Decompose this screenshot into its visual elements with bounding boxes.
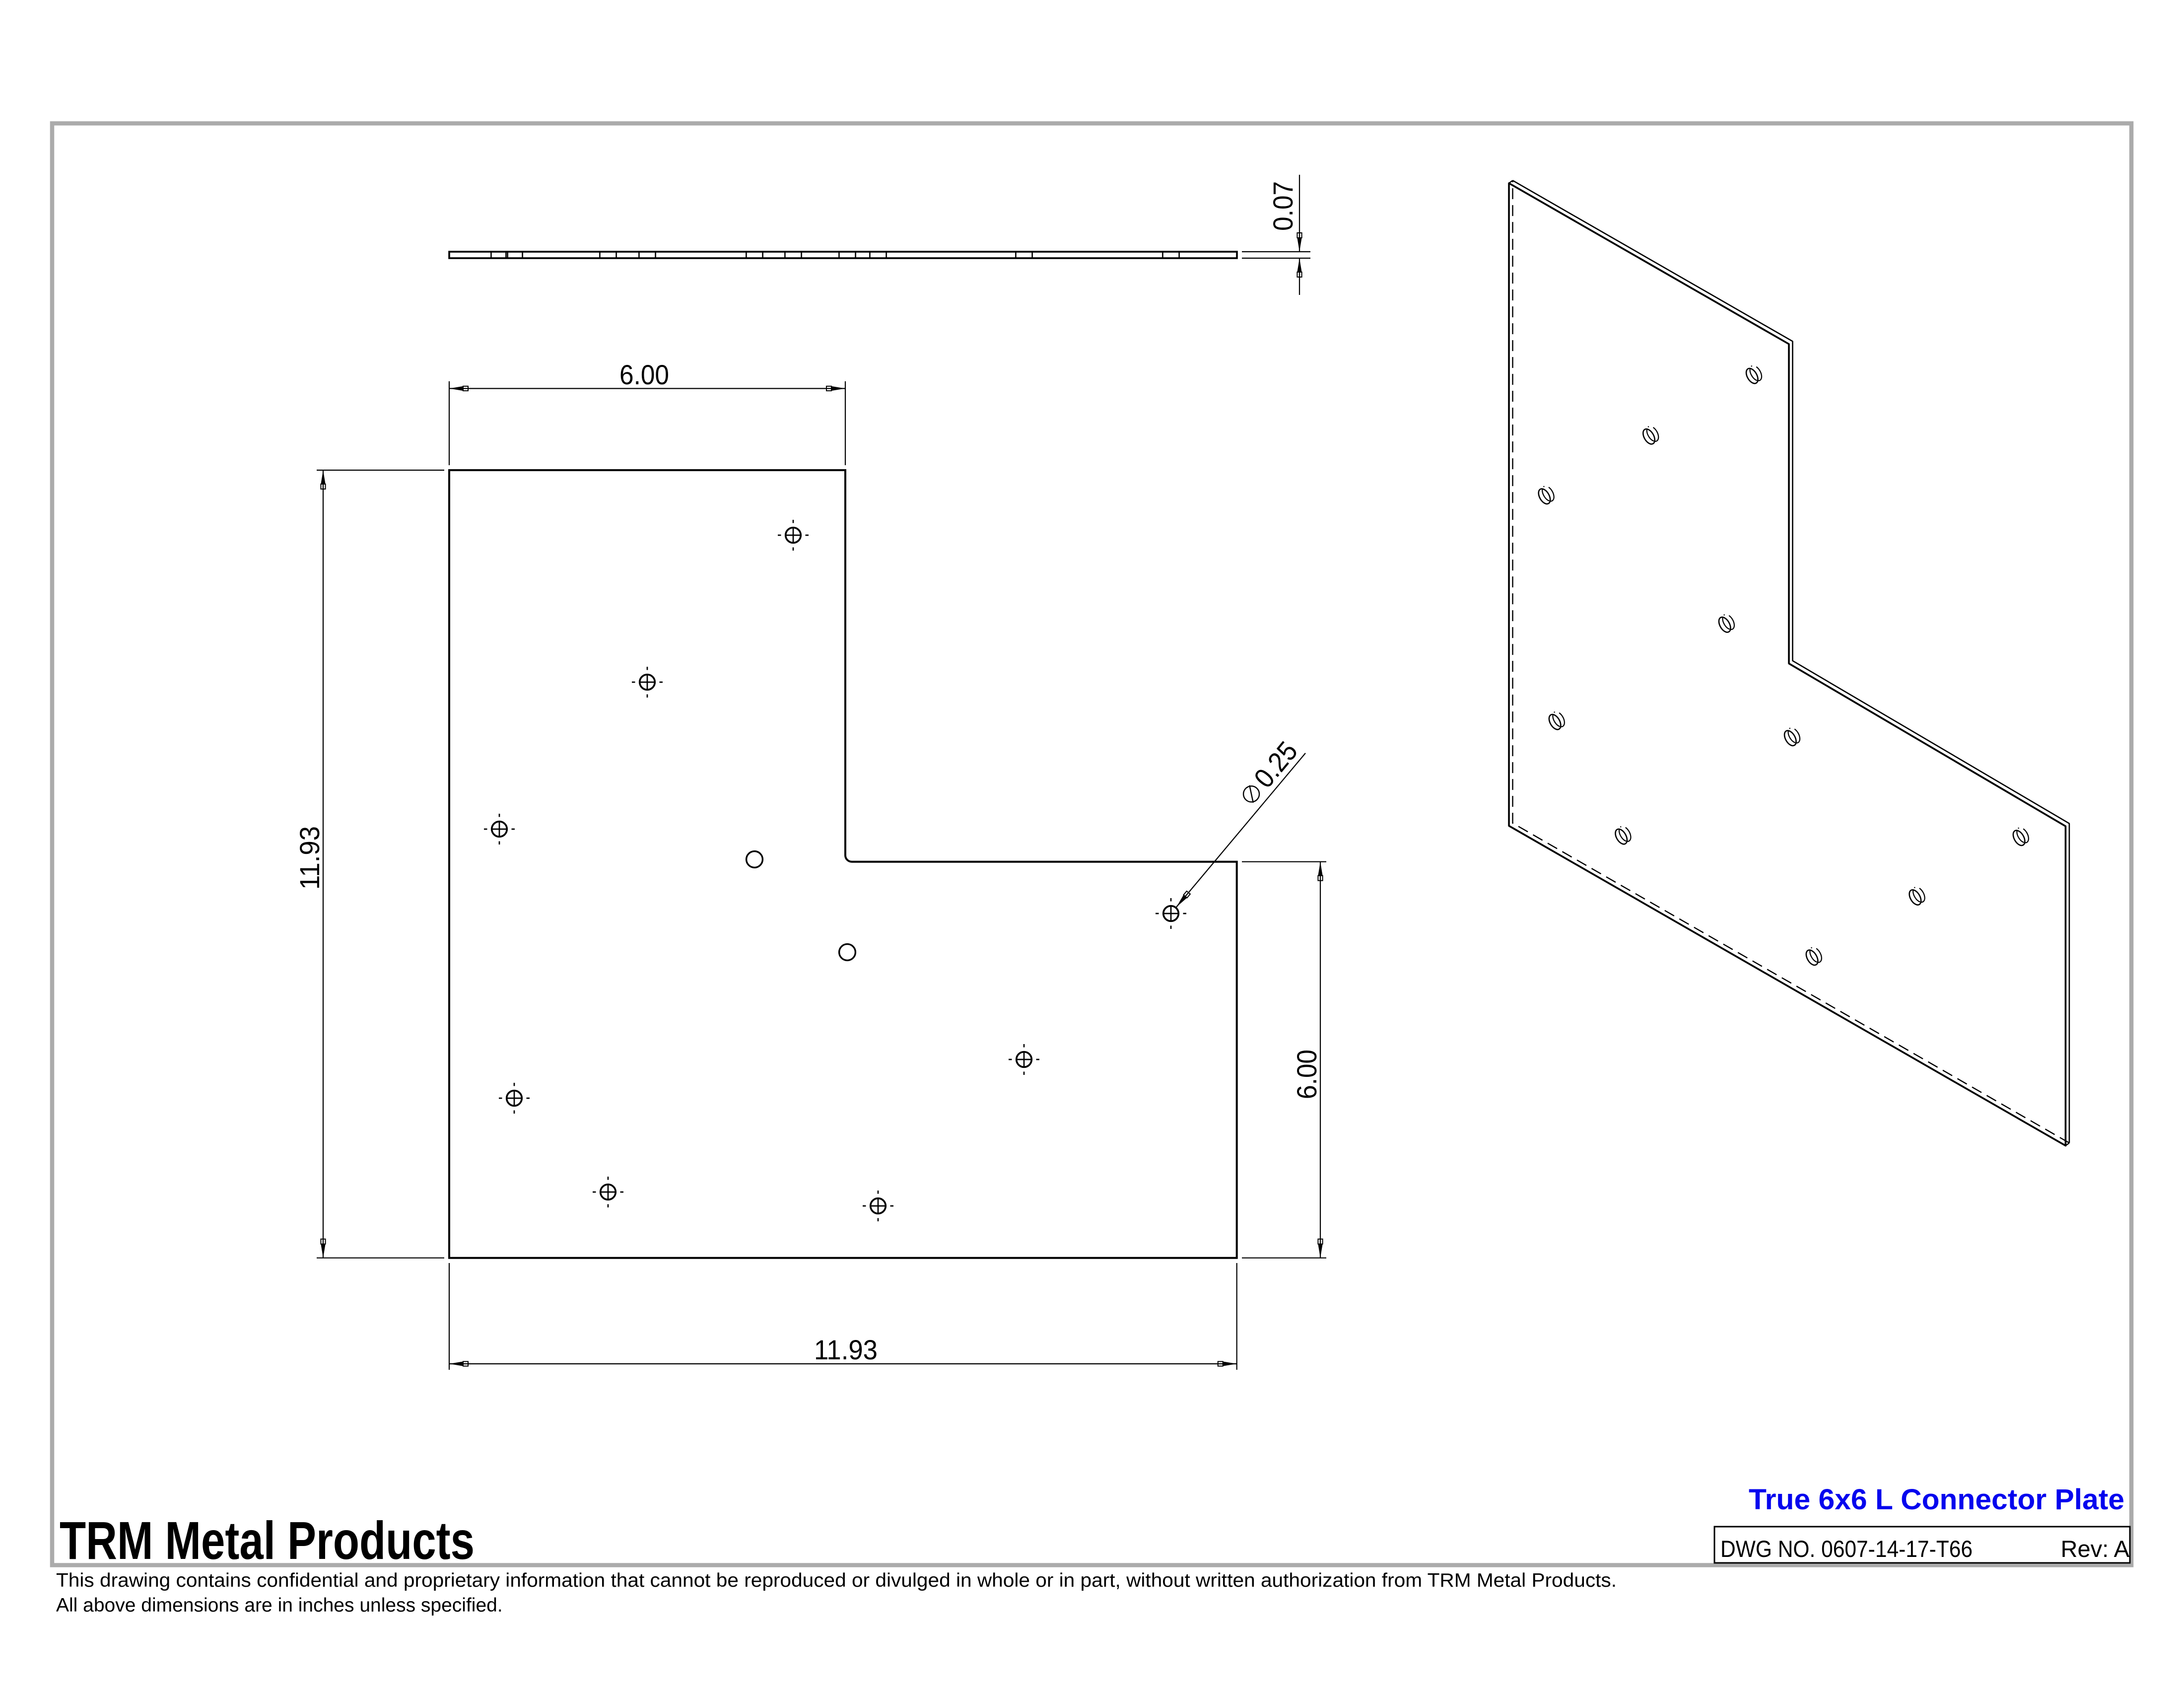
svg-text:0.07: 0.07 [1267, 181, 1298, 231]
svg-text:TRM Metal Products: TRM Metal Products [60, 1510, 475, 1570]
svg-text:0.25: 0.25 [1248, 735, 1303, 793]
svg-text:11.93: 11.93 [814, 1334, 878, 1365]
svg-text:True 6x6 L Connector Plate: True 6x6 L Connector Plate [1749, 1483, 2124, 1516]
svg-text:6.00: 6.00 [619, 359, 669, 390]
svg-text:This drawing contains confiden: This drawing contains confidential and p… [56, 1570, 1617, 1591]
svg-text:DWG NO. 0607-14-17-T66: DWG NO. 0607-14-17-T66 [1720, 1536, 1973, 1562]
svg-text:Rev: A: Rev: A [2061, 1536, 2130, 1562]
svg-text:All above dimensions are in in: All above dimensions are in inches unles… [56, 1595, 503, 1616]
svg-text:6.00: 6.00 [1291, 1050, 1322, 1099]
svg-text:11.93: 11.93 [294, 826, 325, 890]
